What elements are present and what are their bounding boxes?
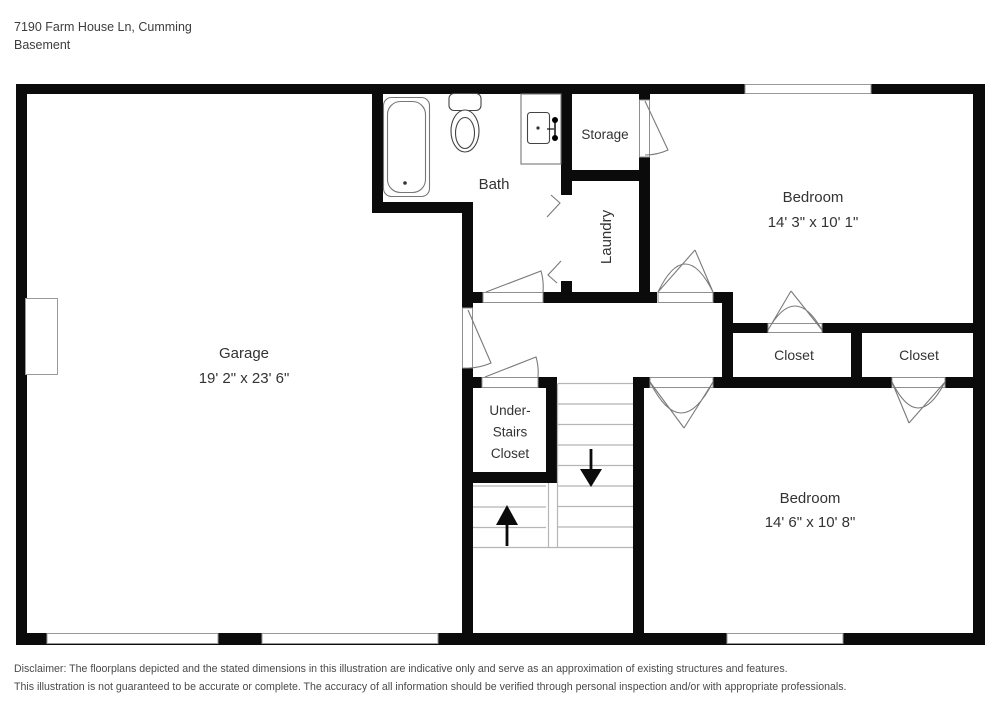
stairs-down-arrow — [580, 449, 602, 487]
garage-side-window — [26, 299, 58, 375]
laundry-label: Laundry — [598, 209, 615, 264]
door-opening-bedroom-bottom — [650, 378, 713, 388]
door-arc-bedroom-bottom — [650, 382, 713, 428]
closet-right-label: Closet — [899, 347, 939, 363]
door-opening-closet-left — [768, 324, 822, 333]
door-arc-understairs — [485, 357, 538, 377]
door-opening-closet-right — [892, 378, 945, 388]
bedroom-top-dims: 14' 3" x 10' 1" — [768, 214, 859, 231]
door-arc-bath-hall — [486, 271, 543, 292]
window-top-bedroom — [745, 85, 871, 94]
windows — [26, 85, 872, 644]
wall-break-bottom — [548, 261, 561, 283]
understairs-label-line3: Closet — [491, 446, 530, 461]
window-bottom-bedroom — [727, 634, 843, 644]
floorplan-page: 7190 Farm House Ln, Cumming Basement — [0, 0, 1000, 707]
disclaimer-line2: This illustration is not guaranteed to b… — [14, 679, 846, 697]
door-arc-bedroom-top — [658, 250, 713, 292]
wall-break-top — [547, 195, 560, 217]
bathtub — [384, 98, 430, 197]
faucet-handle-icon — [552, 135, 558, 141]
stairs-up-arrow — [496, 505, 518, 546]
bath-fixtures — [384, 94, 562, 197]
sink-vanity — [521, 94, 561, 164]
bath-label: Bath — [479, 176, 510, 193]
door-opening-bedroom-top — [658, 293, 713, 303]
faucet-handle-icon — [552, 117, 558, 123]
understairs-label-line1: Under- — [489, 403, 530, 418]
understairs-label-line2: Stairs — [493, 425, 528, 440]
bedroom-bottom-label: Bedroom — [780, 490, 841, 507]
storage-label: Storage — [581, 127, 628, 142]
bedroom-bottom-dims: 14' 6" x 10' 8" — [765, 514, 856, 531]
closet-left-label: Closet — [774, 347, 814, 363]
toilet — [449, 94, 481, 153]
door-arc-closet-right — [892, 382, 945, 423]
disclaimer: Disclaimer: The floorplans depicted and … — [14, 661, 846, 696]
garage-door-right — [262, 634, 438, 644]
garage-label: Garage — [219, 345, 269, 362]
garage-dims: 19' 2" x 23' 6" — [199, 370, 290, 387]
garage-door-left — [47, 634, 218, 644]
door-opening-understairs — [482, 378, 538, 388]
walls — [16, 84, 985, 645]
door-opening-bath-hall — [483, 293, 543, 303]
floorplan-drawing: Garage 19' 2" x 23' 6" Bath Storage Laun… — [0, 0, 1000, 707]
bedroom-top-label: Bedroom — [783, 189, 844, 206]
disclaimer-line1: Disclaimer: The floorplans depicted and … — [14, 661, 846, 679]
